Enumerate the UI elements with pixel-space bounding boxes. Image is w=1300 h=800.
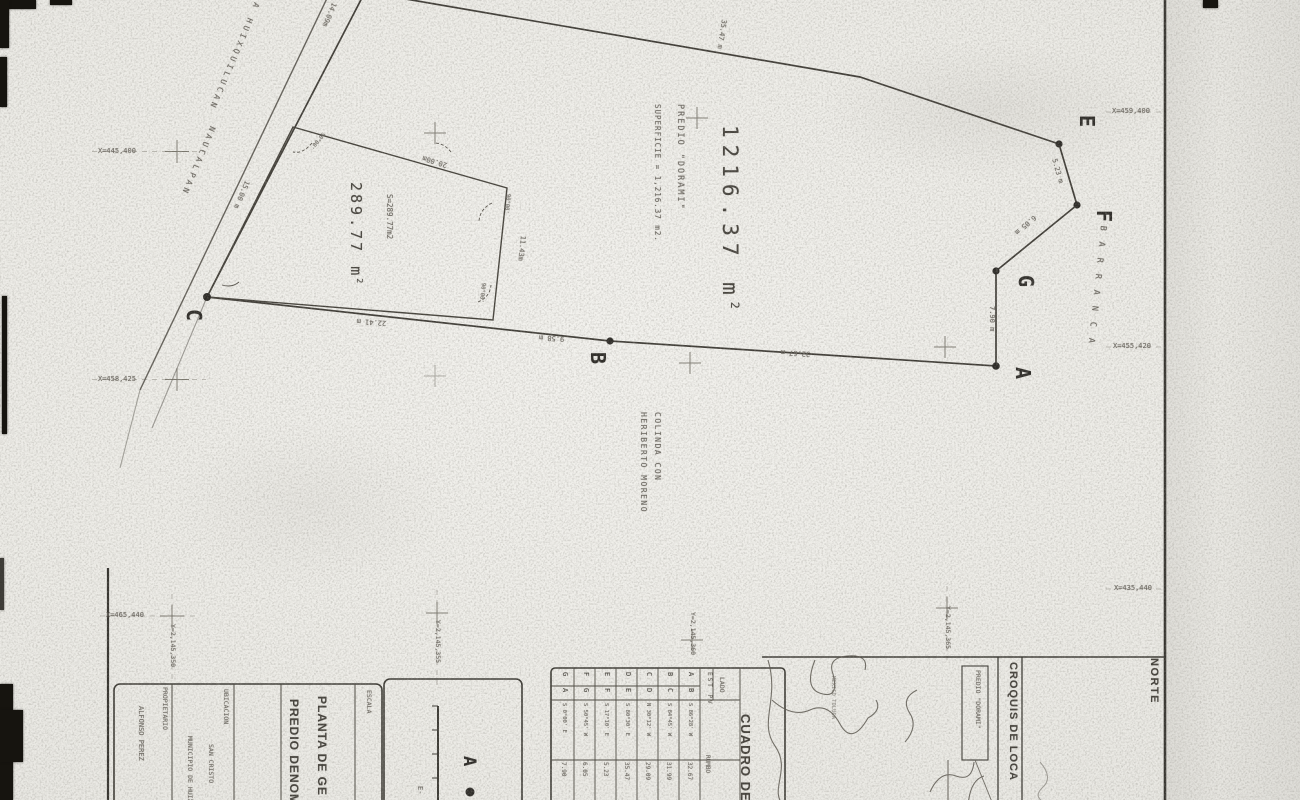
angle-label-p2: 90°00'	[502, 193, 510, 213]
scan-artifact	[2, 296, 7, 434]
croquis-sketch	[768, 656, 1048, 800]
scan-artifact	[1203, 0, 1218, 8]
cuadro-row-est: F	[582, 672, 589, 676]
cuadro-row-pv: E	[624, 688, 631, 692]
colinda-line1: COLINDA CON	[653, 412, 661, 481]
ubicacion-line2: MUNICIPIO DE HUIXQ	[187, 736, 194, 800]
grid-y-4: Y=2,145,365	[945, 606, 952, 649]
legend-vertex-letter: A	[460, 756, 477, 767]
cuadro-row-dist: 29.09	[644, 762, 650, 780]
survey-linework	[0, 0, 1300, 800]
vertex-label-b: B	[588, 352, 608, 365]
cuadro-row-rumbo: N 30°12' W	[645, 703, 651, 736]
legend-vertex-dot	[466, 788, 475, 797]
cuadro-row-est: A	[687, 672, 694, 676]
croquis-title: CROQUIS DE LOCA	[1007, 662, 1018, 781]
scan-artifact	[0, 0, 9, 48]
cuadro-row-dist: 7.90	[560, 762, 566, 776]
angle-label-p3: 90°00'	[477, 282, 485, 302]
cuadro-row-pv: B	[687, 688, 694, 692]
cuadro-row-rumbo: S 84°45' W	[666, 703, 672, 736]
escala-label: ESCALA	[366, 690, 373, 713]
propietario-name: ALFONSO PEREZ	[137, 706, 144, 761]
measure-bc: 9.58 m	[539, 333, 565, 342]
croquis-predio-tag: PREDIO "DORAMI"	[975, 670, 982, 729]
cuadro-row-est: D	[624, 672, 631, 676]
superficie-label: SUPERFICIE = 1,216.37 m2.	[654, 104, 662, 242]
main-parcel-area-value: 1216.37 m	[718, 125, 742, 302]
cuadro-row-rumbo: S 80°30' E	[624, 703, 630, 736]
cuadro-row-pv: D	[645, 688, 652, 692]
scan-artifact	[50, 0, 72, 5]
scale-bar	[432, 706, 438, 800]
vertex-label-a: A	[1013, 367, 1033, 380]
main-parcel-outline	[207, 0, 1077, 366]
cuadro-row-pv: G	[582, 688, 589, 692]
main-parcel-area-label: 1216.37 m2	[719, 125, 740, 316]
cuadro-row-dist: 31.99	[665, 762, 671, 780]
scan-artifact	[0, 57, 7, 107]
small-parcel-area-label: 289.77 m2	[348, 182, 364, 286]
cuadro-row-dist: 6.05	[581, 762, 587, 776]
cuadro-lado-label: LADO	[719, 677, 726, 693]
vertex-label-f: F	[1094, 210, 1114, 223]
colinda-line2: HERIBERTO MORENO	[639, 412, 647, 513]
cuadro-row-rumbo: S 50°45' W	[582, 703, 588, 736]
cuadro-rumbo-label: RUMBO	[704, 755, 710, 773]
vertex-dots	[203, 140, 1081, 369]
cuadro-estpv-label: EST PV	[706, 672, 712, 706]
cuadro-row-rumbo: S 86°28' W	[687, 703, 693, 736]
measure-small-right: 11.43m	[516, 235, 526, 261]
grid-crosses	[160, 107, 958, 650]
grid-y-2: Y=2,145,355	[435, 620, 442, 663]
cuadro-row-dist: 32.67	[686, 762, 692, 780]
grid-x-right-1: X=459,400	[1112, 108, 1150, 115]
cuadro-row-est: C	[645, 672, 652, 676]
main-parcel-area-sup: 2	[728, 302, 742, 316]
grid-x-right-2: X=455,420	[1113, 343, 1151, 350]
measure-ab: 32.67 m	[781, 348, 811, 357]
escala-value: E-	[416, 786, 423, 794]
cuadro-row-dist: 5.23	[602, 762, 608, 776]
vertex-label-g: G	[1016, 275, 1036, 288]
measure-ga: 7.90 m	[988, 306, 995, 331]
scan-artifact	[0, 710, 23, 762]
cuadro-row-est: B	[666, 672, 673, 676]
croquis-road-tag: MEXICO TOLUCA	[830, 676, 836, 719]
cuadro-row-est: E	[603, 672, 610, 676]
small-parcel-area-sup: 2	[355, 278, 365, 286]
small-parcel-s-label: S=289.77m2	[386, 194, 394, 239]
cuadro-title: CUADRO DE	[739, 714, 752, 800]
cuadro-row-rumbo: S 0°00' E	[561, 703, 567, 733]
grid-x-left-3: X=465,440	[106, 612, 144, 619]
ubicacion-line1: SAN CRISTO	[208, 744, 215, 783]
cuadro-row-rumbo: S 17°10' E	[603, 703, 609, 736]
grid-x-left-1: X=445,400	[98, 148, 136, 155]
vertex-label-c: C	[184, 309, 204, 322]
scanned-survey-plan: 1216.37 m2 PREDIO "DORAMI" SUPERFICIE = …	[0, 0, 1300, 800]
grid-x-right-3: X=435,440	[1114, 585, 1152, 592]
grid-x-left-2: X=458,425	[98, 376, 136, 383]
measure-small-bottom: 22.41 m	[357, 317, 387, 326]
predio-name-label: PREDIO "DORAMI"	[676, 104, 685, 211]
grid-y-1: Y=2,145,350	[170, 624, 177, 667]
small-parcel-area-value: 289.77 m	[347, 182, 365, 278]
grid-y-3: Y=2,145,360	[690, 612, 697, 655]
titleblock-title2: PREDIO DENOM	[288, 699, 300, 800]
cuadro-row-est: G	[561, 672, 568, 676]
vertex-label-e: E	[1077, 115, 1097, 128]
scan-artifact	[0, 558, 4, 610]
cuadro-row-dist: 35.47	[623, 762, 629, 780]
ubicacion-label: UBICACION	[223, 689, 230, 724]
titleblock-title1: PLANTA DE GE	[316, 696, 328, 796]
propietario-label: PROPIETARIO	[162, 687, 169, 730]
grid-leaders	[92, 112, 1165, 690]
cuadro-row-pv: A	[561, 688, 568, 692]
cuadro-row-pv: C	[666, 688, 673, 692]
norte-label: NORTE	[1148, 658, 1159, 704]
cuadro-row-pv: F	[603, 688, 610, 692]
